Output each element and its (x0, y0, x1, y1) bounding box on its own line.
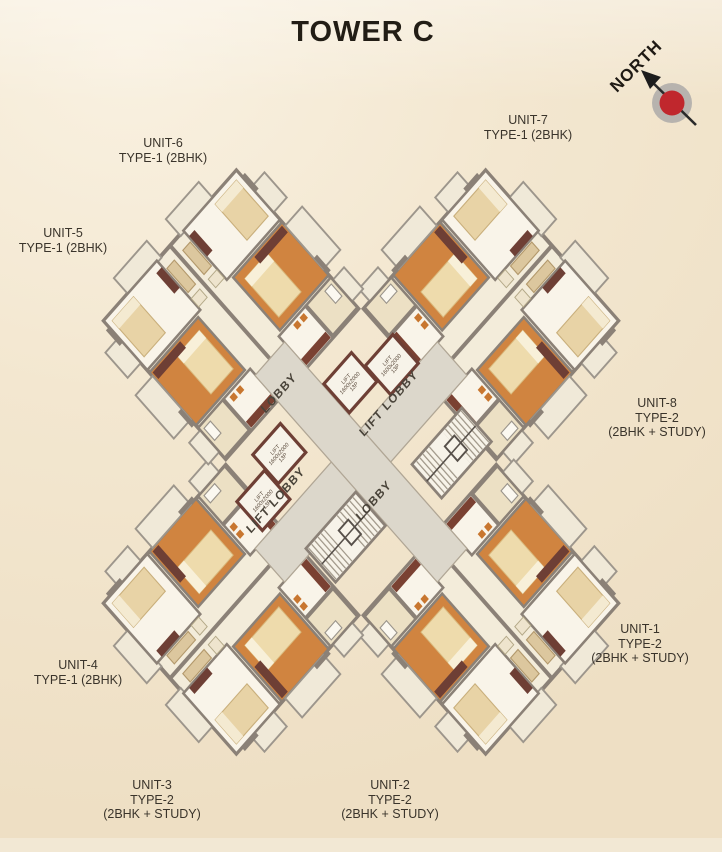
unit-3-label: UNIT-3 TYPE-2 (2BHK + STUDY) (103, 778, 201, 822)
page-title: TOWER C (291, 16, 434, 49)
unit-1-label: UNIT-1 TYPE-2 (2BHK + STUDY) (591, 622, 689, 666)
unit-7-label: UNIT-7 TYPE-1 (2BHK) (484, 113, 572, 142)
north-compass: NORTH (606, 36, 696, 125)
unit-4-label: UNIT-4 TYPE-1 (2BHK) (34, 658, 122, 687)
unit-8-label: UNIT-8 TYPE-2 (2BHK + STUDY) (608, 396, 706, 440)
compass-center-dot (660, 91, 685, 116)
unit-5-label: UNIT-5 TYPE-1 (2BHK) (19, 226, 107, 255)
unit-2-label: UNIT-2 TYPE-2 (2BHK + STUDY) (341, 778, 439, 822)
bottom-strip (0, 838, 722, 852)
unit-6-label: UNIT-6 TYPE-1 (2BHK) (119, 136, 207, 165)
floor-plan-page: LOBBY LIFT LOBBY LIFT LOBBY LOBBY LIFT 1… (0, 0, 722, 852)
